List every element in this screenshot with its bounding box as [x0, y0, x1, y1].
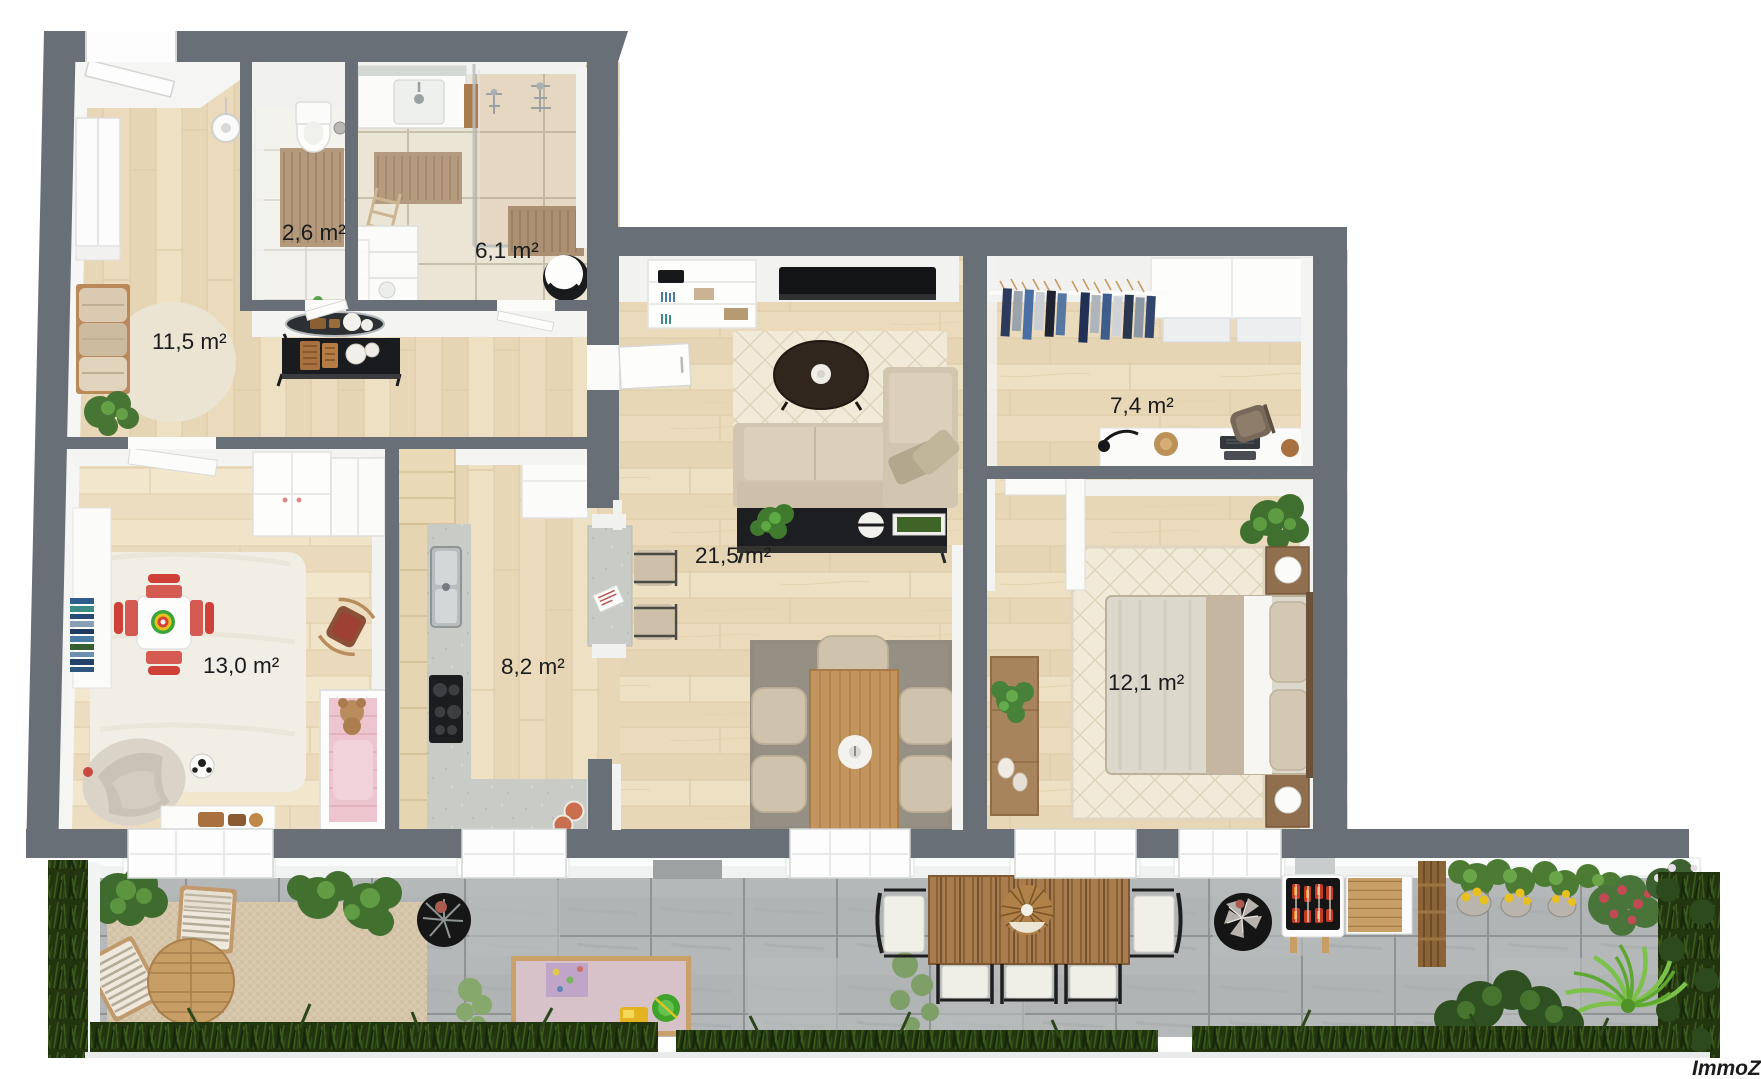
svg-text:11,5 m²: 11,5 m²: [152, 329, 227, 354]
svg-text:ImmoZ: ImmoZ: [1692, 1057, 1761, 1079]
svg-text:2,6 m²: 2,6 m²: [282, 220, 346, 245]
svg-text:6,1 m²: 6,1 m²: [475, 238, 539, 263]
svg-text:21,5 m²: 21,5 m²: [695, 543, 772, 568]
svg-text:7,4 m²: 7,4 m²: [1110, 393, 1174, 418]
svg-text:12,1 m²: 12,1 m²: [1108, 670, 1185, 695]
svg-text:13,0 m²: 13,0 m²: [203, 653, 280, 678]
svg-text:8,2 m²: 8,2 m²: [501, 654, 565, 679]
